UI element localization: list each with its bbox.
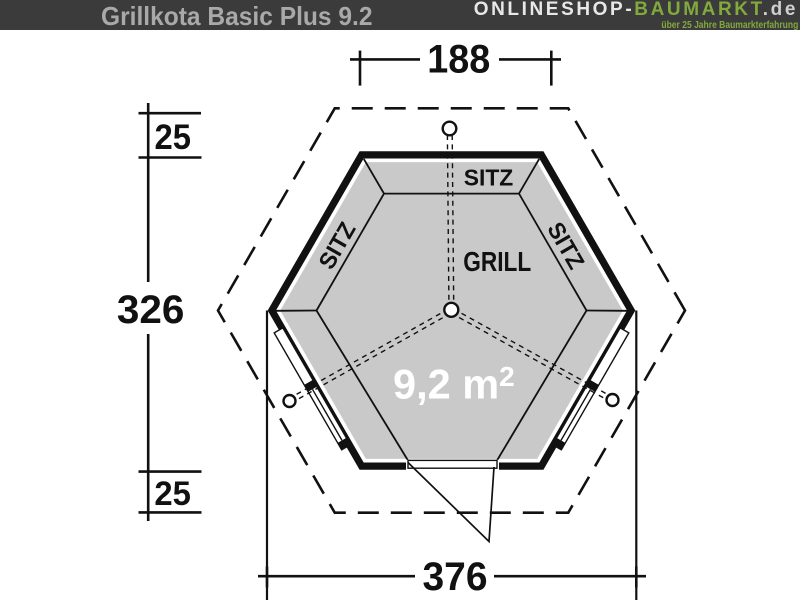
- svg-text:GRILL: GRILL: [463, 246, 531, 277]
- svg-text:188: 188: [427, 37, 490, 81]
- svg-text:SITZ: SITZ: [464, 164, 514, 190]
- svg-text:376: 376: [423, 555, 488, 599]
- svg-text:25: 25: [154, 475, 191, 513]
- svg-text:25: 25: [155, 118, 192, 157]
- svg-text:326: 326: [117, 288, 185, 332]
- svg-text:9,2 m2: 9,2 m2: [393, 361, 515, 408]
